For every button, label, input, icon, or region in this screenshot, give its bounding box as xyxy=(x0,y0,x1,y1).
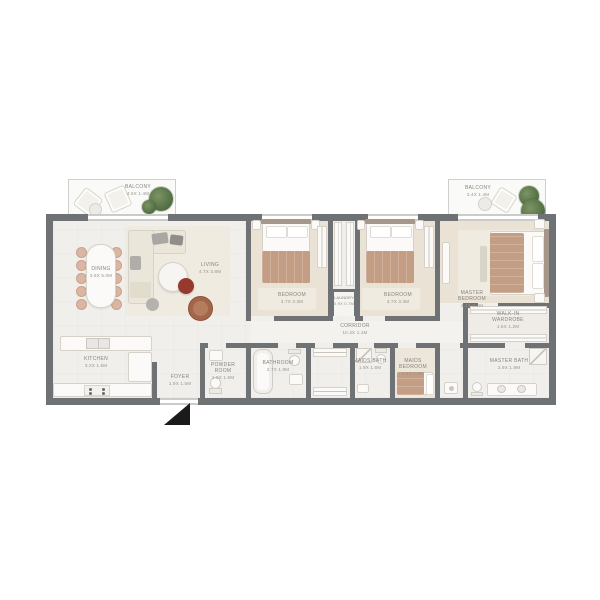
room-dims: 4.7x 3.8M xyxy=(188,269,232,275)
toilet-tank-icon xyxy=(288,349,301,354)
room-label-master-bath: MASTER BATH 2.9x 1.9M xyxy=(486,358,532,371)
wall-segment xyxy=(274,316,333,321)
headboard-icon xyxy=(261,219,311,224)
room-dims: 1.9x 1.5M xyxy=(158,381,202,387)
room-dims: 2.7x 1.9M xyxy=(254,367,302,373)
wardrobe-rail-icon xyxy=(424,226,434,268)
room-dims: 2.4x 1.9M xyxy=(391,371,435,377)
burner-icon xyxy=(102,392,105,395)
room-name: BALCONY xyxy=(112,184,164,190)
nightstand-icon xyxy=(252,220,261,230)
plant-icon xyxy=(142,200,156,214)
wall-segment xyxy=(198,398,556,405)
sofa-cushion-icon xyxy=(151,232,168,245)
nightstand-icon xyxy=(534,293,545,303)
headboard-icon xyxy=(365,219,415,224)
room-label-maids-bedroom: MAIDS BEDROOM 2.4x 1.9M xyxy=(391,358,435,377)
room-dims: 1.9x 1.6M xyxy=(351,365,389,371)
room-label-foyer: FOYER 1.9x 1.5M xyxy=(158,374,202,387)
room-label-master-bedroom: MASTER BEDROOM 4.4x 3.2M xyxy=(446,290,498,309)
room-name: DINING xyxy=(86,266,116,272)
bed-blanket-icon xyxy=(490,233,524,293)
bed-pillow-icon xyxy=(370,226,391,238)
wall-segment xyxy=(435,214,440,321)
bed-pillow-icon xyxy=(532,263,544,289)
kitchen-sink-icon xyxy=(86,338,110,349)
toilet-tank-icon xyxy=(375,348,387,353)
dresser-icon xyxy=(442,242,450,284)
wall-segment xyxy=(226,343,278,348)
room-dims: 3.2x 1.6M xyxy=(72,363,120,369)
bed-pillow-icon xyxy=(391,226,412,238)
sofa-cushion-icon xyxy=(169,234,183,246)
room-name: KITCHEN xyxy=(72,356,120,362)
entrance-marker-icon xyxy=(164,403,190,425)
room-name: MASTER BEDROOM xyxy=(446,290,498,302)
wardrobe-rail-icon xyxy=(470,334,547,342)
room-label-powder: POWDER ROOM 1.9x 1.6M xyxy=(202,362,244,381)
wardrobe-rail-icon xyxy=(346,222,354,286)
wall-segment xyxy=(385,316,440,321)
sink-icon xyxy=(497,385,506,393)
sink-divider xyxy=(98,339,99,348)
fridge-icon xyxy=(128,352,152,382)
room-name: LIVING xyxy=(188,262,232,268)
vanity-icon xyxy=(487,383,537,396)
room-label-kitchen: KITCHEN 3.2x 1.6M xyxy=(72,356,120,369)
bed-pillow-icon xyxy=(266,226,287,238)
room-label-maids-bath: MAIDS BATH 1.9x 1.6M xyxy=(351,358,389,371)
room-name: CORRIDOR xyxy=(327,323,383,329)
room-label-laundry: LAUNDRY 0.9x 0.7M xyxy=(332,295,356,306)
window-balcony-door-left xyxy=(88,214,168,221)
floor-plan-canvas: BALCONY 4.6x 1.4M BALCONY 3.4x 1.4M xyxy=(0,0,600,600)
room-name: BALCONY xyxy=(452,185,504,191)
room-dims: 3.7x 3.3M xyxy=(378,299,418,305)
room-name: FOYER xyxy=(158,374,202,380)
room-dims: 3.7x 3.3M xyxy=(272,299,312,305)
burner-icon xyxy=(89,388,92,391)
room-dims: 0.9x 0.7M xyxy=(332,301,356,306)
stove-icon xyxy=(84,385,110,396)
bed-blanket-icon xyxy=(262,251,310,283)
sink-icon xyxy=(517,385,526,393)
bed-blanket-icon xyxy=(366,251,414,283)
wall-segment xyxy=(549,214,556,405)
wardrobe-rail-icon xyxy=(334,222,342,286)
window-balcony-door-right xyxy=(458,214,538,221)
wall-segment xyxy=(246,214,251,321)
room-label-living: LIVING 4.7x 3.8M xyxy=(188,262,232,275)
wardrobe-rail-icon xyxy=(317,226,327,268)
room-dims: 2.9x 1.9M xyxy=(486,365,532,371)
burner-icon xyxy=(102,388,105,391)
bed-pillow-icon xyxy=(426,374,434,395)
toilet-tank-icon xyxy=(471,392,483,396)
room-label-bedroom-2: BEDROOM 3.7x 3.3M xyxy=(378,292,418,305)
room-label-bedroom-1: BEDROOM 3.7x 3.3M xyxy=(272,292,312,305)
nightstand-icon xyxy=(357,220,365,230)
room-dims: 1.9x 1.6M xyxy=(202,375,244,381)
room-name: BEDROOM xyxy=(378,292,418,298)
closet-shelf-icon xyxy=(313,348,347,357)
room-name: MAIDS BATH xyxy=(351,358,389,364)
washer-icon xyxy=(444,382,458,394)
nightstand-icon xyxy=(415,220,424,230)
room-label-bathroom: BATHROOM 2.7x 1.9M xyxy=(254,360,302,373)
room-label-balcony-left: BALCONY 4.6x 1.4M xyxy=(112,184,164,197)
closet-shelf-icon xyxy=(313,387,347,396)
room-name: BATHROOM xyxy=(254,360,302,366)
room-label-balcony-right: BALCONY 3.4x 1.4M xyxy=(452,185,504,198)
wall-segment xyxy=(46,214,53,405)
sink-icon xyxy=(289,374,303,385)
room-dims: 4.6x 1.4M xyxy=(112,191,164,197)
wall-segment xyxy=(460,343,505,348)
nightstand-icon xyxy=(534,219,545,229)
wall-segment xyxy=(46,398,160,405)
pouf-icon xyxy=(146,298,159,311)
sofa-cushion-icon xyxy=(130,256,141,270)
room-dims: 1.5x 1.2M xyxy=(483,324,533,330)
room-dims: 10.4x 1.1M xyxy=(327,330,383,336)
sink-icon xyxy=(357,384,369,393)
wall-segment xyxy=(355,316,363,321)
room-dims: 3.4x 1.4M xyxy=(452,192,504,198)
headboard-icon xyxy=(544,229,549,297)
room-name: WALK-IN WARDROBE xyxy=(483,311,533,323)
room-dims: 4.4x 3.2M xyxy=(446,303,498,309)
toilet-icon xyxy=(472,382,482,392)
washer-door-icon xyxy=(449,386,454,391)
room-dims: 3.8x 5.0M xyxy=(86,273,116,279)
room-name: POWDER ROOM xyxy=(202,362,244,374)
room-name: MASTER BATH xyxy=(486,358,532,364)
room-label-corridor: CORRIDOR 10.4x 1.1M xyxy=(327,323,383,336)
bed-bench-icon xyxy=(480,246,487,282)
bed-pillow-icon xyxy=(532,236,544,262)
wall-segment xyxy=(463,303,468,398)
wall-segment xyxy=(152,362,157,398)
room-name: MAIDS BEDROOM xyxy=(391,358,435,370)
wall-segment xyxy=(246,343,251,398)
wall-segment xyxy=(435,343,440,398)
room-label-walkin: WALK-IN WARDROBE 1.5x 1.2M xyxy=(483,311,533,330)
wall-segment xyxy=(306,343,311,398)
room-name: LAUNDRY xyxy=(332,295,356,300)
side-table-icon xyxy=(178,278,194,294)
armchair-cushion-icon xyxy=(193,301,208,316)
sink-icon xyxy=(209,350,223,361)
burner-icon xyxy=(89,392,92,395)
dining-chair-icon xyxy=(76,299,87,310)
room-name: BEDROOM xyxy=(272,292,312,298)
bed-pillow-icon xyxy=(287,226,308,238)
outdoor-table-icon xyxy=(478,197,492,211)
room-label-dining: DINING 3.8x 5.0M xyxy=(86,266,116,279)
sofa-throw-icon xyxy=(130,282,151,298)
